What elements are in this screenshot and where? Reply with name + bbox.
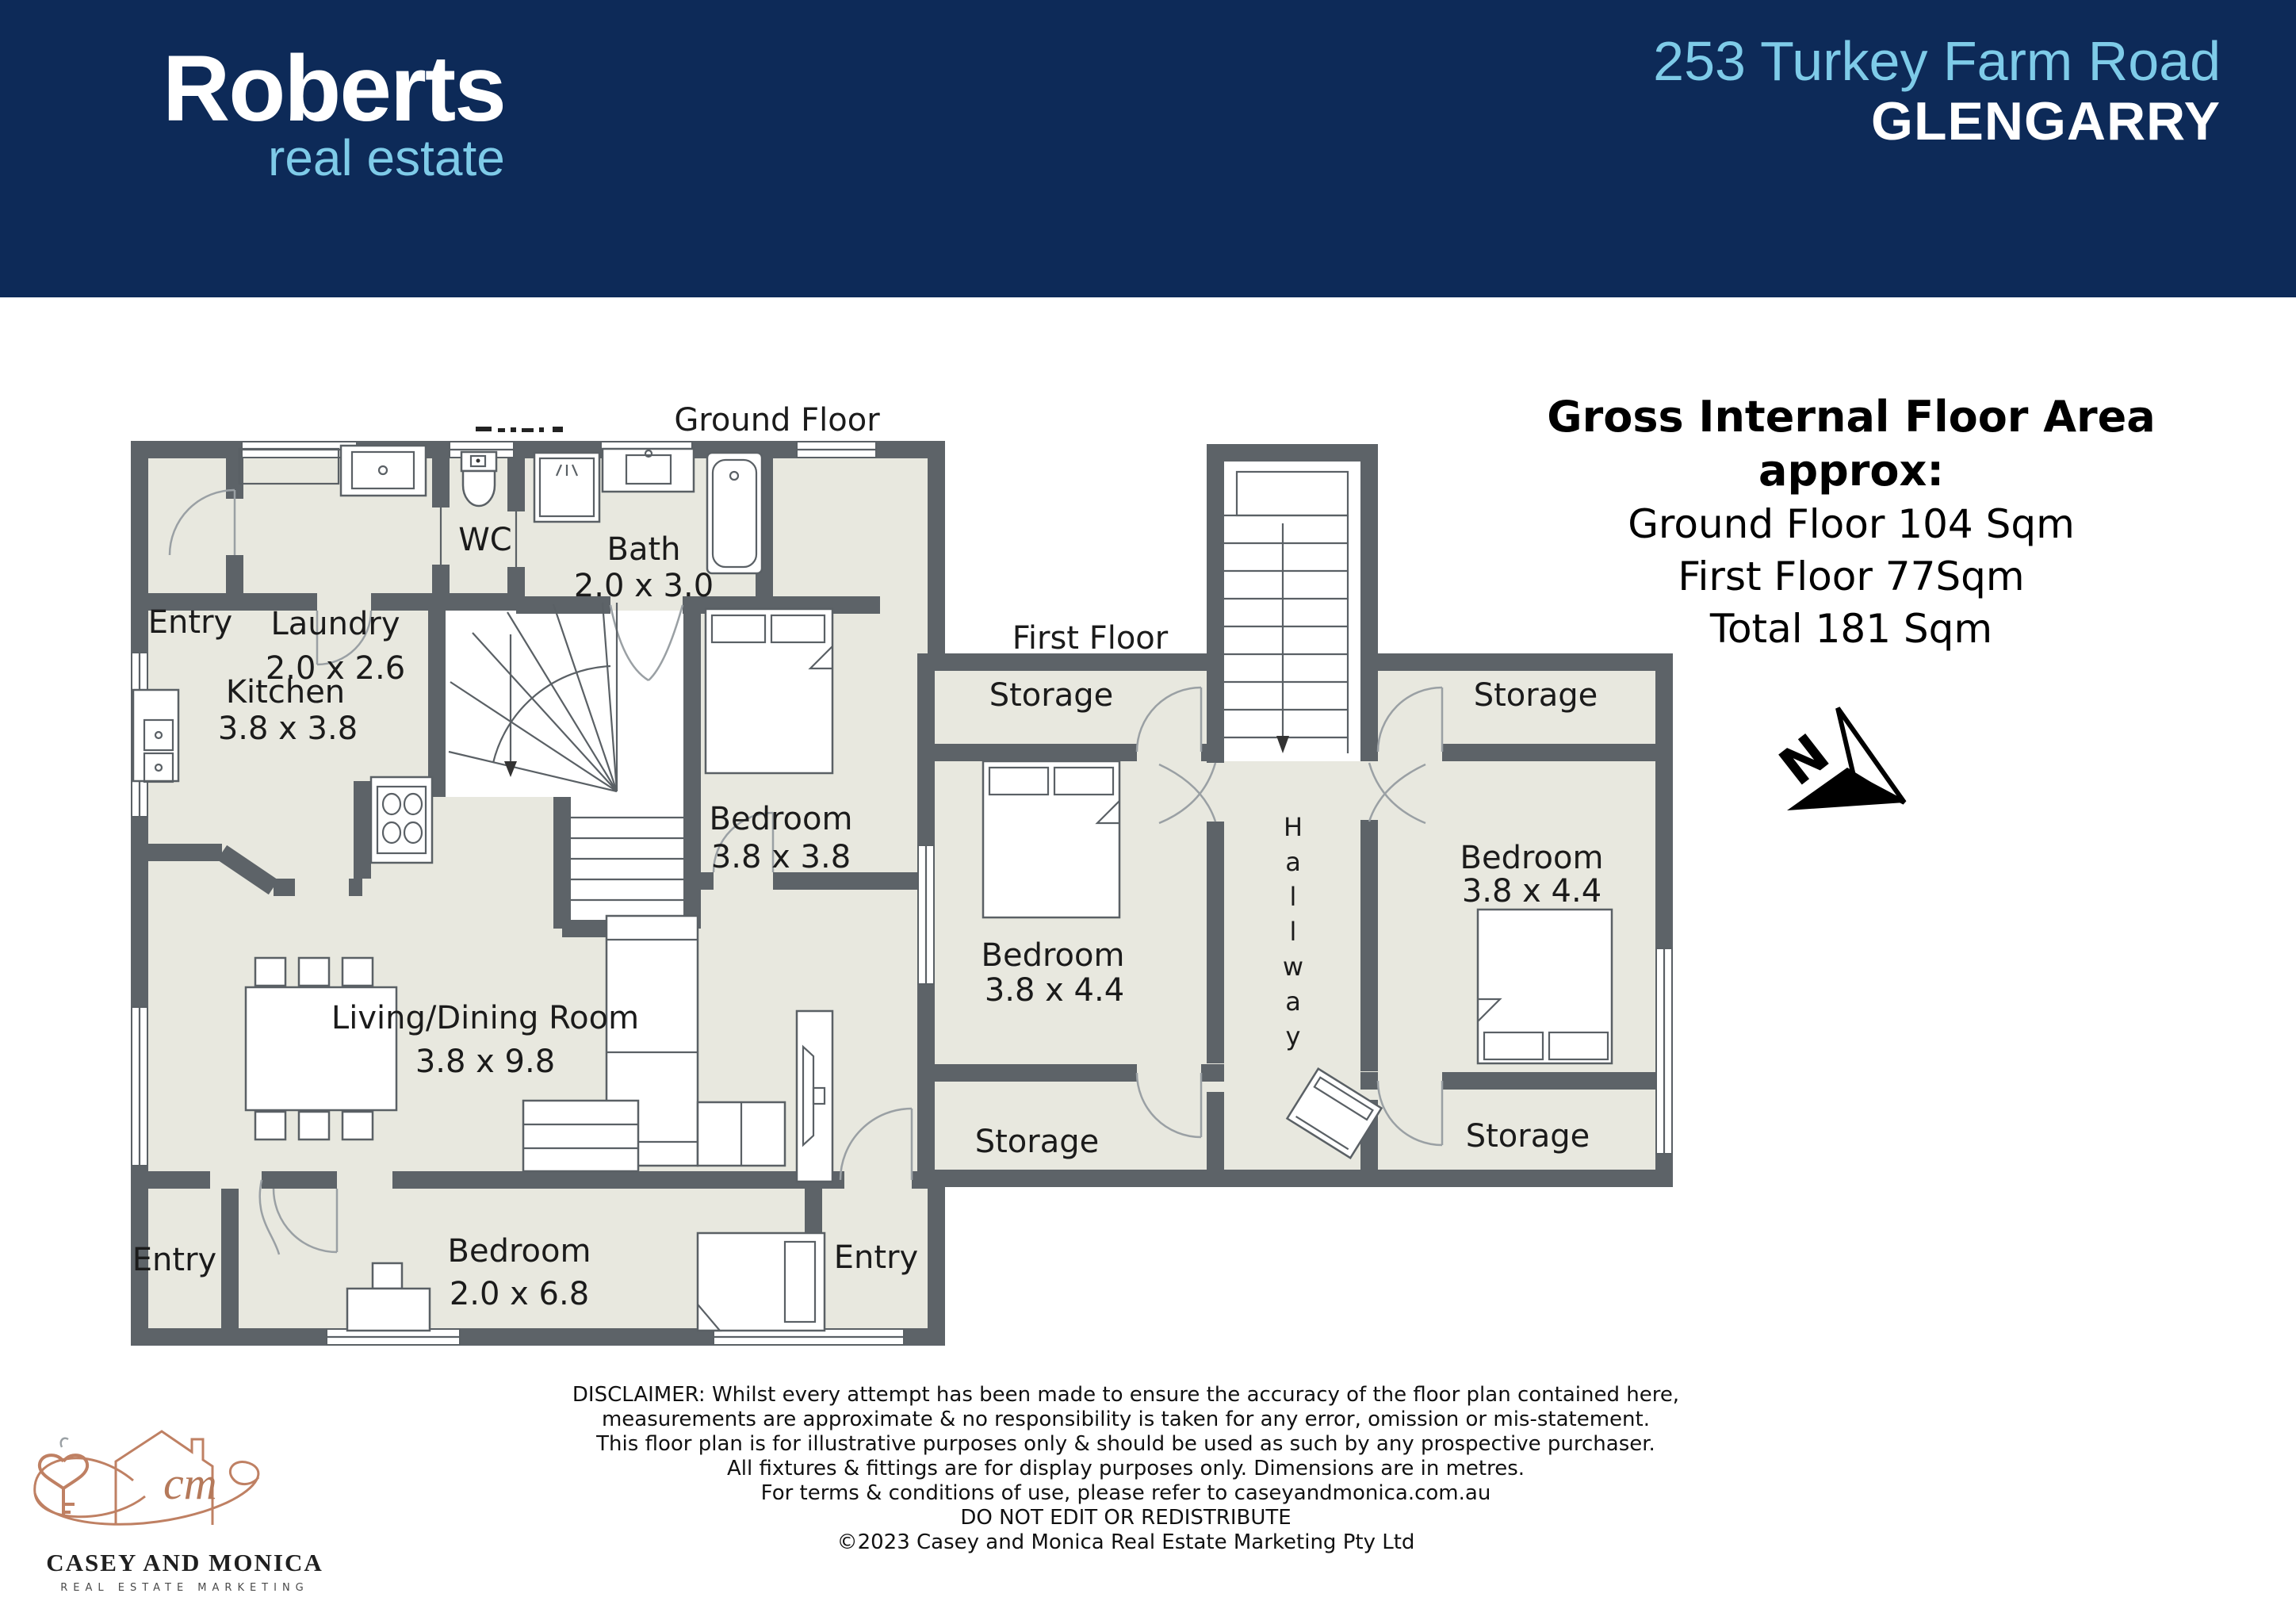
double-bed-left	[983, 761, 1119, 917]
hallway-label: Hallway	[1273, 812, 1308, 1026]
agency-logo: cm CASEY AND MONICA REAL ESTATE MARKETIN…	[14, 1423, 355, 1594]
room-label-bath: Bath	[607, 531, 681, 568]
single-bed	[698, 1233, 825, 1331]
ground-floor-title: Ground Floor	[674, 402, 880, 439]
vanity-basin	[603, 449, 694, 492]
north-arrow-icon: N	[1769, 708, 1905, 810]
kitchen-bench	[133, 690, 178, 782]
clipped-text-fragment	[476, 427, 563, 432]
property-address: 253 Turkey Farm Road GLENGARRY	[1653, 30, 2221, 151]
room-label-bedroom-r: Bedroom	[1460, 840, 1604, 876]
agency-initials: cm	[163, 1457, 217, 1509]
disclaimer-line: This floor plan is for illustrative purp…	[492, 1432, 1760, 1457]
room-dims-bedroom2: 2.0 x 6.8	[450, 1276, 589, 1312]
disclaimer-line: ©2023 Casey and Monica Real Estate Marke…	[492, 1530, 1760, 1555]
disclaimer-line: DISCLAIMER: Whilst every attempt has bee…	[492, 1383, 1760, 1408]
room-dims-living: 3.8 x 9.8	[415, 1044, 555, 1080]
disclaimer-line: All fixtures & fittings are for display …	[492, 1457, 1760, 1481]
laundry-sink	[341, 446, 426, 496]
bathtub	[707, 453, 762, 573]
stove	[371, 777, 432, 863]
room-label-storage-tl: Storage	[989, 677, 1114, 714]
room-dims-bedroom-g: 3.8 x 3.8	[711, 839, 851, 875]
roberts-logo: Roberts real estate	[163, 41, 505, 184]
shower	[534, 453, 599, 522]
double-bed-right	[1478, 910, 1612, 1063]
agency-name: CASEY AND MONICA	[14, 1549, 355, 1577]
floorplan-page: Roberts real estate 253 Turkey Farm Road…	[0, 0, 2296, 1624]
room-label-bedroom-l: Bedroom	[982, 937, 1125, 974]
room-label-entry-top: Entry	[148, 604, 232, 641]
room-label-storage-br: Storage	[1466, 1118, 1590, 1155]
brand-name: Roberts	[163, 41, 505, 136]
disclaimer-line: DO NOT EDIT OR REDISTRIBUTE	[492, 1506, 1760, 1530]
ground-floor-area	[131, 441, 945, 1346]
room-dims-bath: 2.0 x 3.0	[574, 568, 714, 604]
room-label-entry-bl: Entry	[132, 1242, 216, 1278]
tv-unit	[797, 1011, 832, 1182]
header-banner: Roberts real estate 253 Turkey Farm Road…	[0, 0, 2296, 297]
room-label-storage-bl: Storage	[975, 1124, 1100, 1160]
room-dims-kitchen: 3.8 x 3.8	[218, 710, 358, 747]
disclaimer-line: For terms & conditions of use, please re…	[492, 1481, 1760, 1506]
agency-tagline: REAL ESTATE MARKETING	[14, 1582, 355, 1594]
room-dims-bedroom-r: 3.8 x 4.4	[1462, 873, 1601, 910]
double-bed-ground	[706, 609, 832, 773]
cupboard	[523, 1101, 638, 1171]
toilet	[461, 452, 496, 506]
room-label-laundry: Laundry	[270, 606, 400, 642]
agency-logo-graphic: cm	[14, 1423, 355, 1542]
disclaimer-block: DISCLAIMER: Whilst every attempt has bee…	[492, 1383, 1760, 1555]
room-label-living: Living/Dining Room	[331, 1000, 639, 1036]
room-dims-bedroom-l: 3.8 x 4.4	[985, 972, 1124, 1009]
disclaimer-line: measurements are approximate & no respon…	[492, 1408, 1760, 1432]
room-label-storage-tr: Storage	[1474, 677, 1598, 714]
room-label-entry-br: Entry	[834, 1239, 918, 1276]
address-suburb: GLENGARRY	[1653, 92, 2221, 151]
room-label-bedroom-g: Bedroom	[710, 801, 853, 837]
room-label-bedroom2: Bedroom	[448, 1233, 591, 1270]
room-label-wc: WC	[458, 522, 511, 558]
ground-floor-plan: Entry Laundry 2.0 x 2.6 WC Bath 2.0 x 3.…	[131, 441, 945, 1346]
first-floor-title: First Floor	[1012, 620, 1169, 657]
room-label-kitchen: Kitchen	[226, 674, 345, 710]
address-street: 253 Turkey Farm Road	[1653, 30, 2221, 92]
